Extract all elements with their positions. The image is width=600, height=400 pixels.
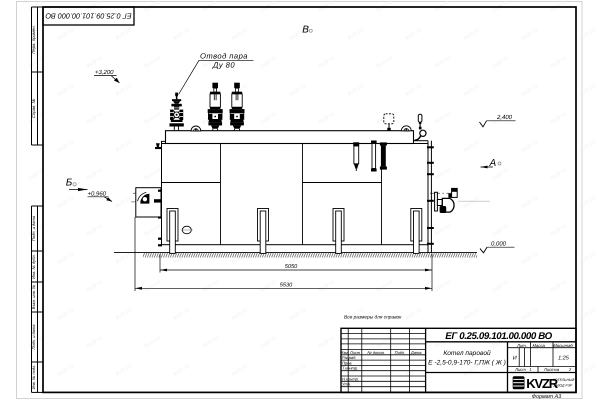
svg-text:Утв.: Утв. (342, 382, 351, 387)
svg-text:Масса: Масса (533, 343, 546, 348)
svg-text:5050: 5050 (285, 264, 298, 270)
svg-text:+3,200: +3,200 (95, 69, 114, 76)
svg-text:Ду 80: Ду 80 (212, 60, 235, 69)
svg-text:Дата: Дата (410, 350, 422, 355)
svg-text:0,000: 0,000 (491, 241, 507, 248)
svg-text:Т.контр.: Т.контр. (342, 366, 358, 371)
svg-text:ЕГ 0.25.09.101.00.000 ВО: ЕГ 0.25.09.101.00.000 ВО (45, 12, 131, 21)
svg-text:ЕГ 0.25.09.101.00.000 ВО: ЕГ 0.25.09.101.00.000 ВО (445, 331, 552, 342)
svg-text:Лит.: Лит. (516, 343, 527, 348)
svg-text:+0,960: +0,960 (88, 190, 107, 197)
svg-text:Пров.: Пров. (342, 360, 353, 365)
svg-text:Инв. № подл.: Инв. № подл. (31, 365, 36, 390)
svg-text:Подп.: Подп. (395, 350, 406, 355)
svg-text:Лист: Лист (349, 350, 361, 355)
svg-text:Все размеры для справок: Все размеры для справок (344, 314, 402, 320)
svg-text:Подп. и дата: Подп. и дата (31, 324, 36, 350)
svg-text:КОТЕЛЬНЫЙ: КОТЕЛЬНЫЙ (553, 377, 575, 382)
svg-text:Инв. № дубл.: Инв. № дубл. (31, 254, 36, 279)
svg-text:1: 1 (529, 367, 531, 372)
svg-text:Изм.: Изм. (340, 350, 349, 355)
svg-text:Взам. инв. №: Взам. инв. № (31, 284, 36, 309)
svg-text:Листов: Листов (543, 367, 560, 372)
svg-text:Н.контр.: Н.контр. (342, 376, 359, 381)
svg-text:Лист: Лист (514, 367, 526, 372)
svg-text:ЗАВОД РЭР: ЗАВОД РЭР (553, 384, 573, 388)
svg-text:Котел паровой: Котел паровой (443, 350, 491, 357)
svg-text:В: В (302, 24, 309, 35)
svg-text:Справ. №: Справ. № (31, 98, 36, 118)
svg-text:Б: Б (66, 177, 73, 188)
svg-text:Масштаб: Масштаб (553, 343, 573, 348)
svg-text:Формат А3: Формат А3 (532, 394, 562, 400)
svg-text:Отвод пара: Отвод пара (200, 51, 248, 60)
svg-text:Подп. и дата: Подп. и дата (31, 215, 36, 241)
svg-text:Перв. примен.: Перв. примен. (31, 25, 36, 54)
svg-text:5530: 5530 (280, 282, 293, 288)
svg-text:Е -2,5-0,9-170- Г,ПЖ ( Ж ): Е -2,5-0,9-170- Г,ПЖ ( Ж ) (428, 360, 506, 367)
svg-text:И: И (513, 356, 517, 362)
svg-text:Разраб.: Разраб. (342, 355, 356, 360)
svg-text:2,400: 2,400 (496, 114, 513, 121)
svg-text:№ докум.: № докум. (367, 350, 385, 355)
svg-text:1:25: 1:25 (558, 356, 570, 362)
